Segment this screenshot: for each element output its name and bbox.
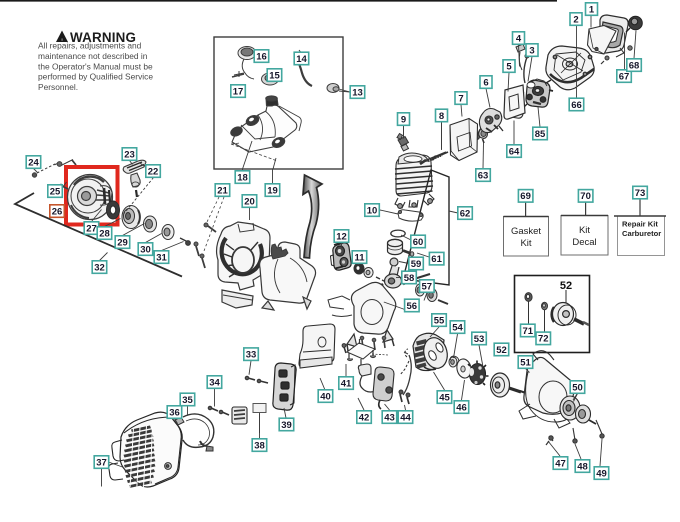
svg-text:42: 42 [359,412,370,423]
svg-text:27: 27 [86,223,97,234]
svg-text:36: 36 [169,407,180,418]
svg-text:53: 53 [474,334,485,345]
svg-text:41: 41 [341,378,352,389]
svg-text:44: 44 [400,412,411,423]
svg-text:1: 1 [589,4,595,15]
svg-text:5: 5 [506,61,512,72]
svg-text:20: 20 [244,196,255,207]
svg-text:Gasket: Gasket [511,226,541,237]
svg-text:Kit: Kit [520,238,531,249]
svg-text:3: 3 [529,45,534,56]
svg-text:11: 11 [354,252,365,263]
svg-text:32: 32 [94,262,105,273]
svg-text:60: 60 [413,237,424,248]
svg-text:61: 61 [431,254,442,265]
svg-text:50: 50 [572,382,583,393]
svg-text:67: 67 [619,71,630,82]
svg-text:70: 70 [580,191,591,202]
svg-text:24: 24 [28,157,39,168]
svg-text:15: 15 [269,70,280,81]
svg-text:14: 14 [296,54,307,65]
svg-text:6: 6 [483,77,488,88]
svg-text:37: 37 [96,457,107,468]
svg-text:9: 9 [401,114,406,125]
svg-text:28: 28 [99,228,110,239]
svg-text:13: 13 [352,87,363,98]
svg-text:7: 7 [458,93,463,104]
svg-text:4: 4 [516,33,522,44]
svg-text:22: 22 [148,166,159,177]
svg-text:19: 19 [267,185,278,196]
svg-text:30: 30 [140,244,151,255]
svg-text:10: 10 [367,205,378,216]
svg-text:25: 25 [50,186,61,197]
svg-text:8: 8 [439,111,444,122]
svg-text:43: 43 [384,412,395,423]
svg-text:54: 54 [452,322,463,333]
svg-text:31: 31 [156,252,167,263]
svg-text:68: 68 [629,60,640,71]
svg-text:47: 47 [555,458,566,469]
svg-text:58: 58 [404,273,415,284]
svg-text:17: 17 [233,86,244,97]
svg-text:48: 48 [577,461,588,472]
svg-text:64: 64 [509,146,520,157]
svg-text:Decal: Decal [572,237,596,248]
svg-text:2: 2 [573,14,578,25]
svg-text:Carburetor: Carburetor [622,229,661,238]
svg-text:63: 63 [478,170,489,181]
svg-text:Repair Kit: Repair Kit [622,220,658,229]
svg-text:59: 59 [411,259,422,270]
svg-text:66: 66 [571,100,582,111]
svg-text:69: 69 [520,191,531,202]
svg-text:49: 49 [596,468,607,479]
svg-text:46: 46 [456,402,467,413]
svg-text:33: 33 [246,350,257,361]
svg-text:56: 56 [407,301,418,312]
svg-text:38: 38 [254,440,265,451]
svg-text:39: 39 [281,420,292,431]
svg-text:18: 18 [237,172,248,183]
svg-text:12: 12 [336,231,347,242]
svg-text:71: 71 [523,326,534,337]
svg-text:51: 51 [520,357,531,368]
svg-text:34: 34 [209,377,220,388]
svg-text:55: 55 [434,315,445,326]
svg-text:62: 62 [460,208,471,219]
svg-text:72: 72 [538,334,549,345]
svg-text:35: 35 [182,395,193,406]
svg-text:85: 85 [535,129,546,140]
svg-text:21: 21 [217,185,228,196]
svg-text:29: 29 [117,237,128,248]
svg-text:45: 45 [439,392,450,403]
svg-text:73: 73 [635,188,646,199]
svg-text:16: 16 [256,51,267,62]
svg-text:26: 26 [52,206,63,217]
svg-text:Kit: Kit [579,225,590,236]
svg-text:57: 57 [422,281,433,292]
svg-text:23: 23 [124,149,135,160]
svg-text:52: 52 [496,345,507,356]
svg-text:40: 40 [320,391,331,402]
